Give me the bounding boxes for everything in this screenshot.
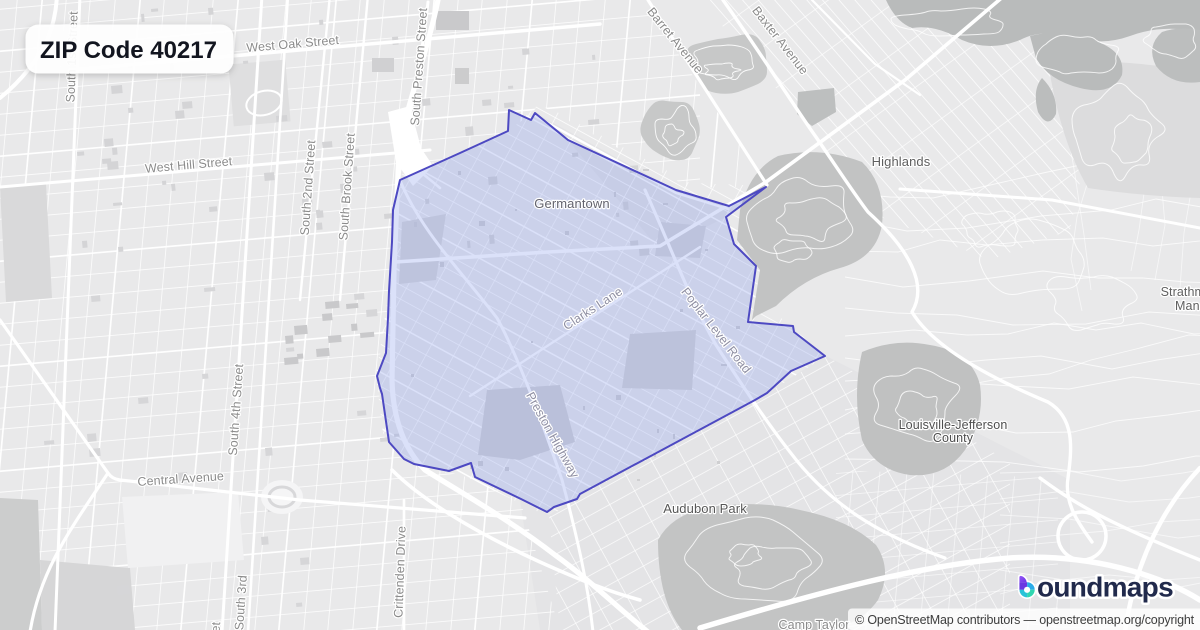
svg-text:County: County xyxy=(933,431,974,445)
svg-text:Germantown: Germantown xyxy=(534,196,609,211)
svg-text:Louisville-Jefferson: Louisville-Jefferson xyxy=(899,418,1008,432)
svg-text:Strathmoor: Strathmoor xyxy=(1161,285,1200,299)
svg-text:Audubon Park: Audubon Park xyxy=(663,501,747,516)
svg-text:ZIP Code 40217: ZIP Code 40217 xyxy=(40,37,217,64)
svg-text:Manor: Manor xyxy=(1175,299,1200,313)
svg-text:© OpenStreetMap contributors —: © OpenStreetMap contributors — openstree… xyxy=(855,613,1195,627)
svg-text:Highlands: Highlands xyxy=(872,154,931,169)
svg-text:Camp Taylor: Camp Taylor xyxy=(778,618,849,630)
svg-text:oundmaps: oundmaps xyxy=(1037,572,1173,603)
